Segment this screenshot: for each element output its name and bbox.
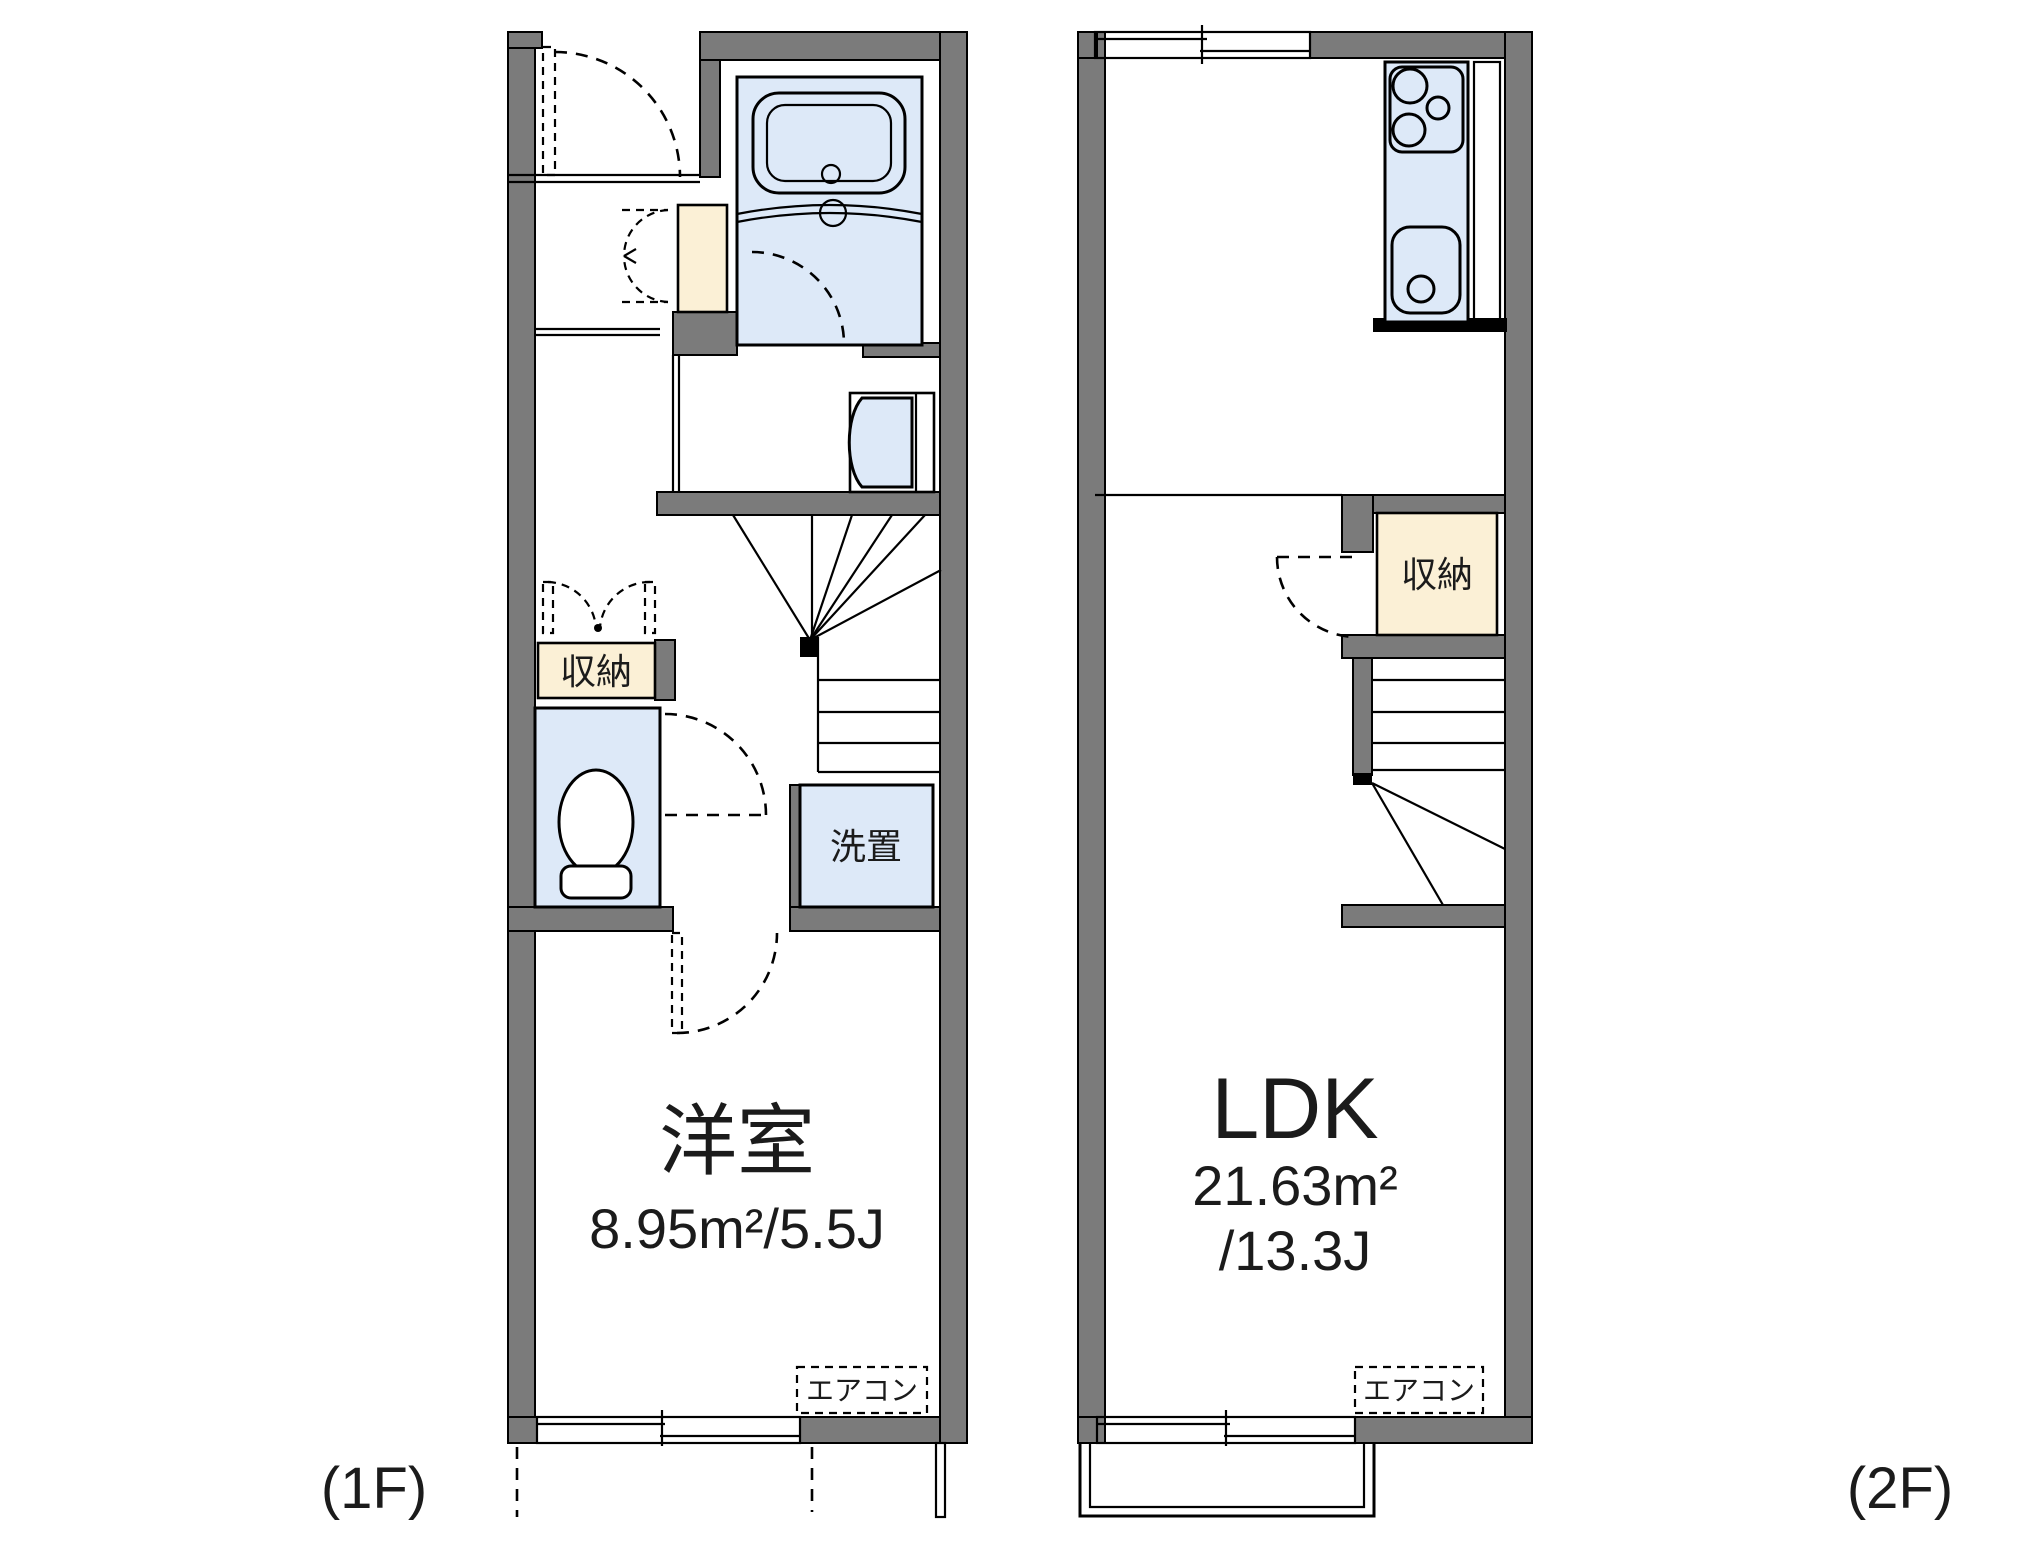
entrance-step-line <box>508 175 700 335</box>
room-area-1f: 8.95m²/5.5J <box>589 1197 885 1260</box>
floor-plan-2f: 収納 LDK 21.63m² /13.3J エアコン <box>1078 25 1953 1521</box>
room-door-swing-1f <box>672 933 777 1033</box>
floor-label-2f: (2F) <box>1847 1456 1953 1521</box>
kitchen-side-panel <box>1474 62 1500 320</box>
toilet-icon <box>559 770 633 898</box>
floor-plan-1f: 収納 洗置 <box>321 32 967 1521</box>
stairs-1f-icon <box>733 515 941 772</box>
aircon-2f-label: エアコン <box>1363 1375 1475 1406</box>
window-1f-south <box>537 1410 800 1446</box>
window-2f-south <box>1097 1410 1355 1446</box>
aircon-1f-label: エアコン <box>806 1375 918 1406</box>
floor-label-1f: (1F) <box>321 1456 427 1521</box>
balcony-icon <box>1080 1443 1374 1516</box>
porch-marks-1f <box>517 1443 945 1517</box>
floor-plan-drawing: 収納 洗置 <box>0 0 2031 1543</box>
window-2f-north <box>1095 25 1310 64</box>
shoe-cabinet <box>678 205 727 312</box>
room-name-1f: 洋室 <box>659 1097 815 1185</box>
aircon-1f: エアコン <box>797 1367 927 1413</box>
floor-plan-page: 収納 洗置 <box>0 0 2031 1543</box>
bathroom-floor <box>737 77 922 345</box>
storage-2f-door-swing <box>1277 557 1357 637</box>
aircon-2f: エアコン <box>1355 1367 1483 1413</box>
stairs-2f-icon <box>1372 680 1505 905</box>
room-area-2f-jo: /13.3J <box>1219 1219 1372 1282</box>
storage-1f-label: 収納 <box>560 651 632 692</box>
laundry-label: 洗置 <box>830 826 902 867</box>
closet-bifold-doors-icon <box>622 210 668 302</box>
bathroom-1f <box>737 77 922 345</box>
toilet-room-1f <box>535 708 766 907</box>
toilet-door-swing <box>665 714 766 815</box>
storage-2f: 収納 <box>1277 513 1497 637</box>
storage-2f-label: 収納 <box>1401 554 1473 595</box>
laundry-space: 洗置 <box>800 785 933 907</box>
washbasin-icon <box>673 355 934 492</box>
room-area-2f-m2: 21.63m² <box>1192 1154 1397 1217</box>
kitchen-2f <box>1095 62 1500 495</box>
entrance-door-swing <box>543 47 680 177</box>
storage-doors-icon <box>543 582 655 633</box>
storage-1f: 収納 <box>538 582 655 698</box>
kitchen-counter <box>1385 62 1468 322</box>
room-name-2f: LDK <box>1211 1061 1378 1157</box>
